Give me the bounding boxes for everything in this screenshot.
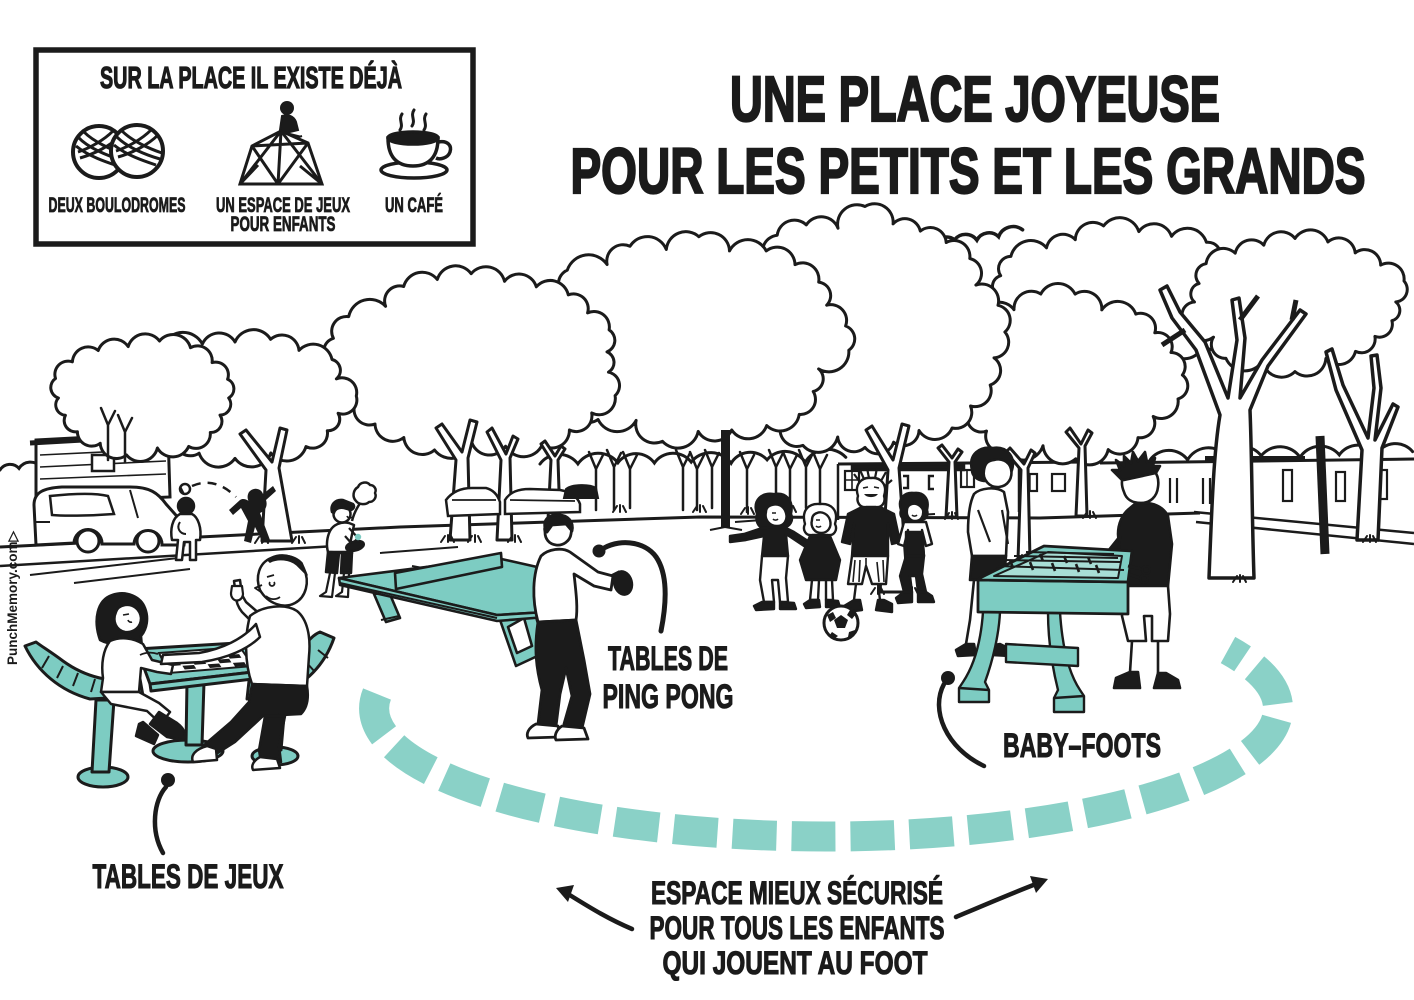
svg-text:UNE PLACE JOYEUSE: UNE PLACE JOYEUSE	[730, 63, 1220, 135]
svg-text:PING PONG: PING PONG	[603, 678, 734, 716]
svg-text:POUR TOUS LES ENFANTS: POUR TOUS LES ENFANTS	[650, 910, 945, 946]
svg-text:DEUX BOULODROMES: DEUX BOULODROMES	[49, 194, 186, 217]
svg-text:POUR LES PETITS ET LES GRANDS: POUR LES PETITS ET LES GRANDS	[571, 135, 1366, 207]
svg-text:UN CAFÉ: UN CAFÉ	[385, 194, 443, 217]
svg-text:BABY–FOOTS: BABY–FOOTS	[1003, 727, 1161, 765]
svg-text:SUR LA PLACE IL EXISTE DÉJÀ: SUR LA PLACE IL EXISTE DÉJÀ	[100, 60, 402, 95]
svg-text:ESPACE MIEUX SÉCURISÉ: ESPACE MIEUX SÉCURISÉ	[651, 875, 943, 911]
svg-text:PunchMemory.com▷: PunchMemory.com▷	[5, 529, 20, 665]
svg-text:TABLES DE JEUX: TABLES DE JEUX	[93, 858, 284, 896]
svg-text:TABLES DE: TABLES DE	[608, 640, 728, 678]
svg-text:POUR ENFANTS: POUR ENFANTS	[231, 213, 336, 236]
svg-text:QUI JOUENT AU FOOT: QUI JOUENT AU FOOT	[663, 945, 928, 981]
